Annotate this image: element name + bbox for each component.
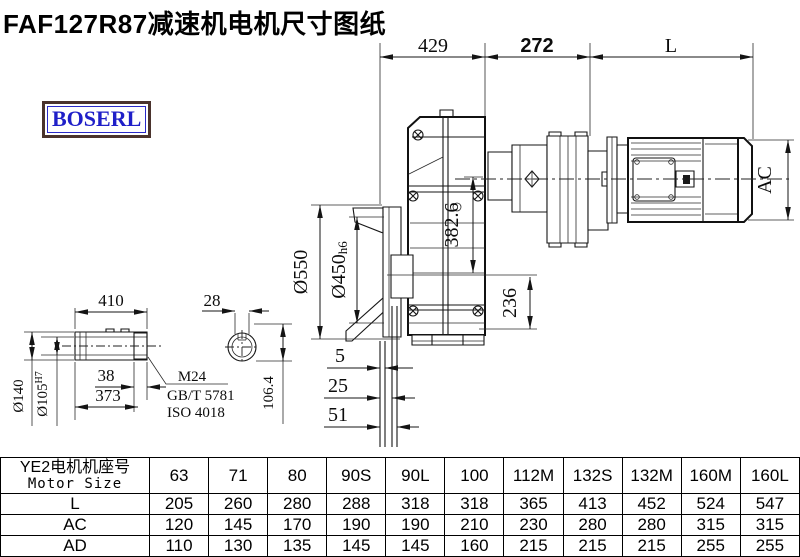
column-header: 132S <box>563 458 622 494</box>
table-cell: 280 <box>622 515 681 536</box>
dim-106-4: 106.4 <box>261 376 277 410</box>
table-cell: 315 <box>740 515 799 536</box>
table-row: AD110130135145145160215215215255255 <box>1 536 800 557</box>
table-cell: 145 <box>209 515 268 536</box>
table-cell: 190 <box>386 515 445 536</box>
dim-28: 28 <box>204 291 221 310</box>
dim-25: 25 <box>328 375 348 397</box>
table-header-motor-size: YE2电机机座号Motor Size <box>1 458 150 494</box>
input-gear-stage <box>488 132 614 247</box>
dim-51: 51 <box>328 404 348 426</box>
table-cell: 288 <box>327 494 386 515</box>
dim-550: Ø550 <box>290 250 312 294</box>
table-cell: 260 <box>209 494 268 515</box>
note-gbt-5781: GB/T 5781 <box>167 388 235 404</box>
table-cell: 160 <box>445 536 504 557</box>
motor-size-table: YE2电机机座号Motor Size63718090S90L100112M132… <box>0 457 800 557</box>
column-header: 80 <box>268 458 327 494</box>
table-cell: 413 <box>563 494 622 515</box>
table-cell: 547 <box>740 494 799 515</box>
table-cell: 365 <box>504 494 563 515</box>
row-label: AD <box>1 536 150 557</box>
dim-410: 410 <box>98 291 124 310</box>
column-header: 100 <box>445 458 504 494</box>
table-cell: 255 <box>740 536 799 557</box>
output-flange <box>346 207 413 447</box>
table-cell: 190 <box>327 515 386 536</box>
table-cell: 205 <box>150 494 209 515</box>
table-cell: 280 <box>268 494 327 515</box>
table-cell: 315 <box>681 515 740 536</box>
table-cell: 110 <box>150 536 209 557</box>
column-header: 160L <box>740 458 799 494</box>
dim-373: 373 <box>95 386 121 405</box>
table-cell: 135 <box>268 536 327 557</box>
note-M24: M24 <box>178 369 207 385</box>
column-header: 71 <box>209 458 268 494</box>
table-cell: 318 <box>386 494 445 515</box>
shaft-section-view <box>225 330 259 364</box>
table-cell: 524 <box>681 494 740 515</box>
drawing-page: FAF127R87减速机电机尺寸图纸 BOSERL 429 272 L <box>0 0 800 557</box>
table-cell: 145 <box>386 536 445 557</box>
table-row: AC120145170190190210230280280315315 <box>1 515 800 536</box>
dim-140: Ø140 <box>11 379 27 412</box>
table-row: L205260280288318318365413452524547 <box>1 494 800 515</box>
dim-L: L <box>665 35 677 57</box>
table-cell: 170 <box>268 515 327 536</box>
table-cell: 215 <box>563 536 622 557</box>
column-header: 90S <box>327 458 386 494</box>
column-header: 90L <box>386 458 445 494</box>
table-cell: 130 <box>209 536 268 557</box>
dim-450h6: Ø450h6 <box>328 241 350 299</box>
motor <box>607 137 752 223</box>
dim-429: 429 <box>418 35 448 57</box>
table-cell: 255 <box>681 536 740 557</box>
note-iso-4018: ISO 4018 <box>167 405 225 421</box>
table-cell: 215 <box>504 536 563 557</box>
table-cell: 230 <box>504 515 563 536</box>
dim-AC: AC <box>754 166 776 194</box>
header-cn: YE2电机机座号 <box>1 459 149 476</box>
dim-272: 272 <box>520 35 553 57</box>
shaft-inset: 410 Ø140 Ø105H7 38 373 M24 GB/T <box>11 291 292 426</box>
table-cell: 145 <box>327 536 386 557</box>
row-label: L <box>1 494 150 515</box>
table-cell: 452 <box>622 494 681 515</box>
column-header: 63 <box>150 458 209 494</box>
dim-5: 5 <box>335 345 345 367</box>
dim-382-6: 382.6 <box>441 203 463 248</box>
column-header: 112M <box>504 458 563 494</box>
table-cell: 210 <box>445 515 504 536</box>
column-header: 160M <box>681 458 740 494</box>
table-cell: 280 <box>563 515 622 536</box>
row-label: AC <box>1 515 150 536</box>
dim-105H7: Ø105H7 <box>34 371 51 417</box>
table-cell: 318 <box>445 494 504 515</box>
column-header: 132M <box>622 458 681 494</box>
table-cell: 215 <box>622 536 681 557</box>
header-en: Motor Size <box>1 476 149 492</box>
dim-236: 236 <box>499 288 521 318</box>
table-cell: 120 <box>150 515 209 536</box>
dim-38: 38 <box>98 366 115 385</box>
